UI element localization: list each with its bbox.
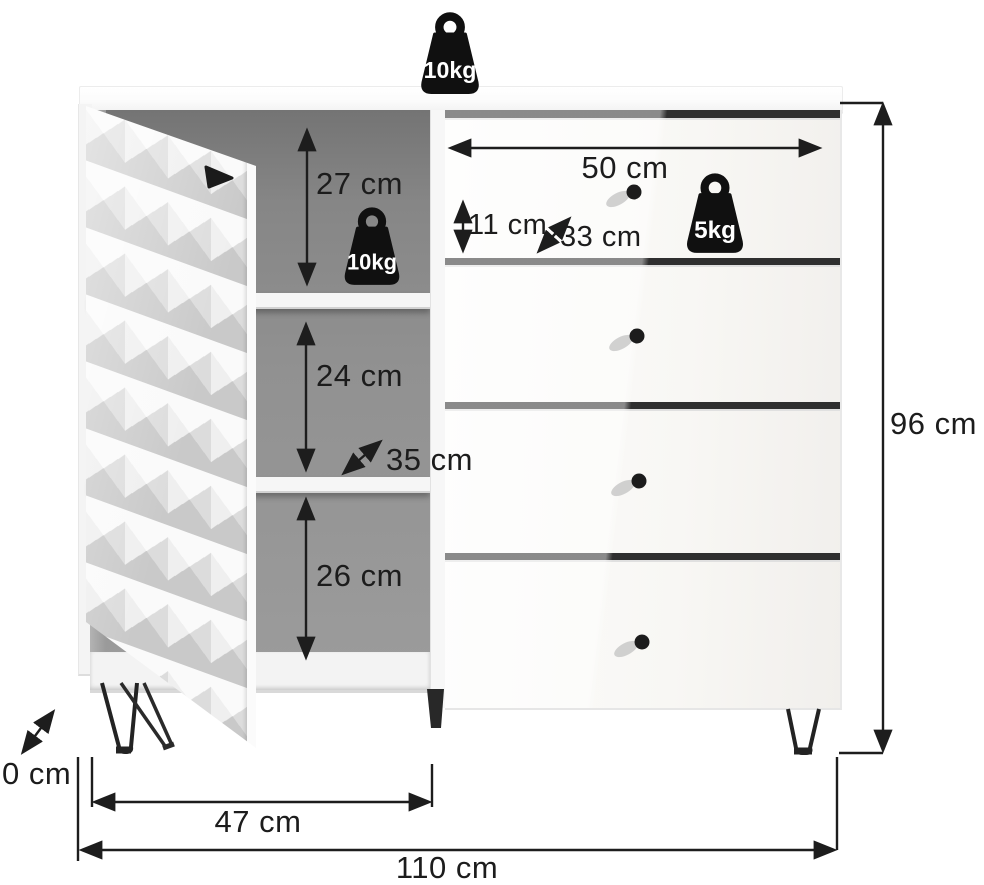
label-33cm: 33 cm — [560, 223, 641, 252]
label-leg-clearance: 0 cm — [2, 758, 71, 789]
weight-icon-top: 10kg — [408, 12, 492, 94]
dim-line-leg — [23, 712, 53, 752]
weight-shelf-label: 10kg — [347, 250, 397, 275]
hairpin-leg-front-right — [788, 709, 819, 753]
center-divider-panel — [430, 110, 446, 708]
drawer-gap-3 — [445, 553, 840, 562]
drawer-gap-2 — [445, 402, 840, 411]
weight-top-label: 10kg — [424, 57, 477, 83]
label-27cm: 27 cm — [316, 168, 403, 199]
weight-icon-drawer: 5kg — [676, 168, 754, 258]
drawer-stack — [445, 110, 842, 710]
label-35cm: 35 cm — [386, 444, 473, 475]
weight-drawer-label: 5kg — [694, 217, 736, 244]
weight-icon-shelf: 10kg — [334, 206, 410, 286]
drawer-gap-top — [445, 110, 840, 120]
label-26cm: 26 cm — [316, 560, 403, 591]
drawer-gap-1 — [445, 258, 840, 267]
label-24cm: 24 cm — [316, 360, 403, 391]
label-50cm: 50 cm — [582, 152, 669, 183]
product-dimension-diagram: 10kg 10kg 5kg 27 cm 24 cm 26 cm 35 cm 50… — [0, 0, 984, 885]
label-47cm: 47 cm — [215, 806, 302, 837]
label-11cm: 11 cm — [468, 211, 547, 240]
label-110cm: 110 cm — [396, 852, 498, 883]
label-96cm: 96 cm — [890, 408, 977, 439]
hairpin-leg-front-left — [102, 683, 137, 752]
